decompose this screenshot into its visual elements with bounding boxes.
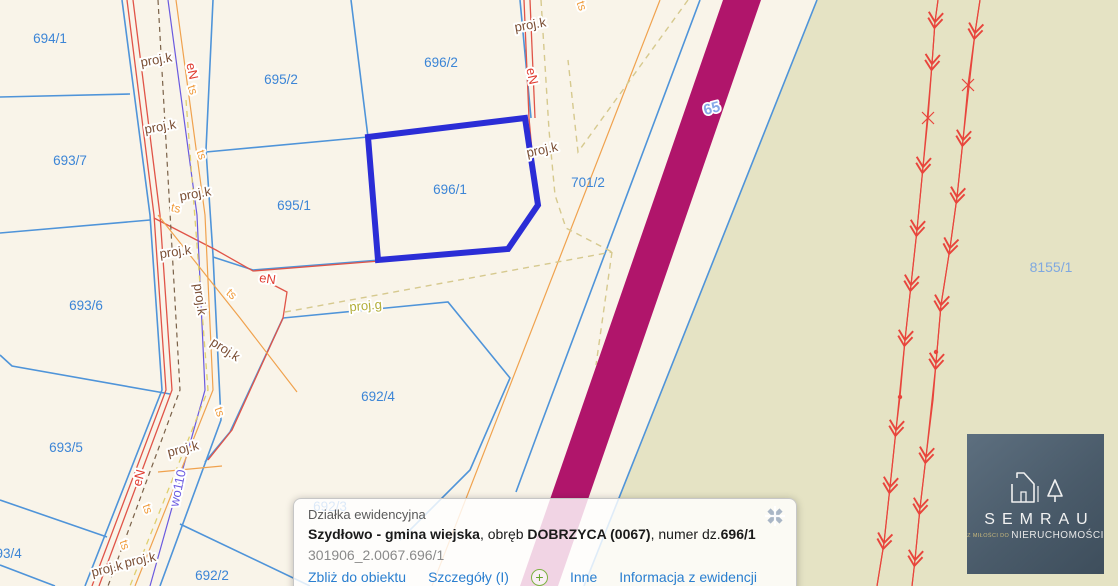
- parcel-label: 695/1: [277, 198, 311, 213]
- parcel-number: 696/1: [721, 526, 756, 542]
- tagline-small: Z MIŁOŚCI DO: [967, 533, 1009, 539]
- semrau-watermark: SEMRAU Z MIŁOŚCI DONIERUCHOMOŚCI: [967, 434, 1104, 574]
- obreb: DOBRZYCA (0067): [527, 526, 650, 542]
- parcel-label: 693/6: [69, 298, 103, 313]
- municipality: Szydłowo - gmina wiejska: [308, 526, 480, 542]
- brand-tagline: Z MIŁOŚCI DONIERUCHOMOŚCI: [967, 530, 1104, 541]
- parcel-label: 693/4: [0, 546, 22, 561]
- parcel-label: 701/2: [571, 175, 605, 190]
- parcel-label: 694/1: [33, 31, 67, 46]
- plus-icon[interactable]: +: [531, 569, 548, 586]
- tagline-large: NIERUCHOMOŚCI: [1011, 530, 1104, 541]
- parcel-label: 696/2: [424, 55, 458, 70]
- popup-title: Działka ewidencyjna: [308, 506, 782, 524]
- parcel-identifier: 301906_2.0067.696/1: [308, 545, 782, 566]
- close-icon[interactable]: [765, 506, 785, 526]
- other-link[interactable]: Inne: [570, 566, 597, 586]
- parcel-label: 692/2: [195, 568, 229, 583]
- popup-links: Zbliż do obiektu Szczegóły (I) + Inne In…: [308, 566, 782, 586]
- house-tree-icon: [1004, 468, 1068, 508]
- parcel-label: 696/1: [433, 182, 467, 197]
- proj-g-label: proj.g: [349, 297, 383, 315]
- registry-info-link[interactable]: Informacja z ewidencji: [619, 566, 757, 586]
- parcel-label: 695/2: [264, 72, 298, 87]
- popup-parcel-line: Szydłowo - gmina wiejska, obręb DOBRZYCA…: [308, 524, 782, 545]
- map-viewport: 694/1 695/2 696/2 693/7 695/1 696/1 701/…: [0, 0, 1118, 586]
- parcel-info-popup: Działka ewidencyjna Szydłowo - gmina wie…: [293, 498, 797, 586]
- parcel-label: 693/5: [49, 440, 83, 455]
- parcel-label: 693/7: [53, 153, 87, 168]
- brand-name: SEMRAU: [984, 511, 1094, 529]
- zoom-to-object-link[interactable]: Zbliż do obiektu: [308, 566, 406, 586]
- en-label: eN: [258, 270, 277, 287]
- details-link[interactable]: Szczegóły (I): [428, 566, 509, 586]
- parcel-label: 692/4: [361, 389, 395, 404]
- parcel-label: 8155/1: [1030, 259, 1073, 275]
